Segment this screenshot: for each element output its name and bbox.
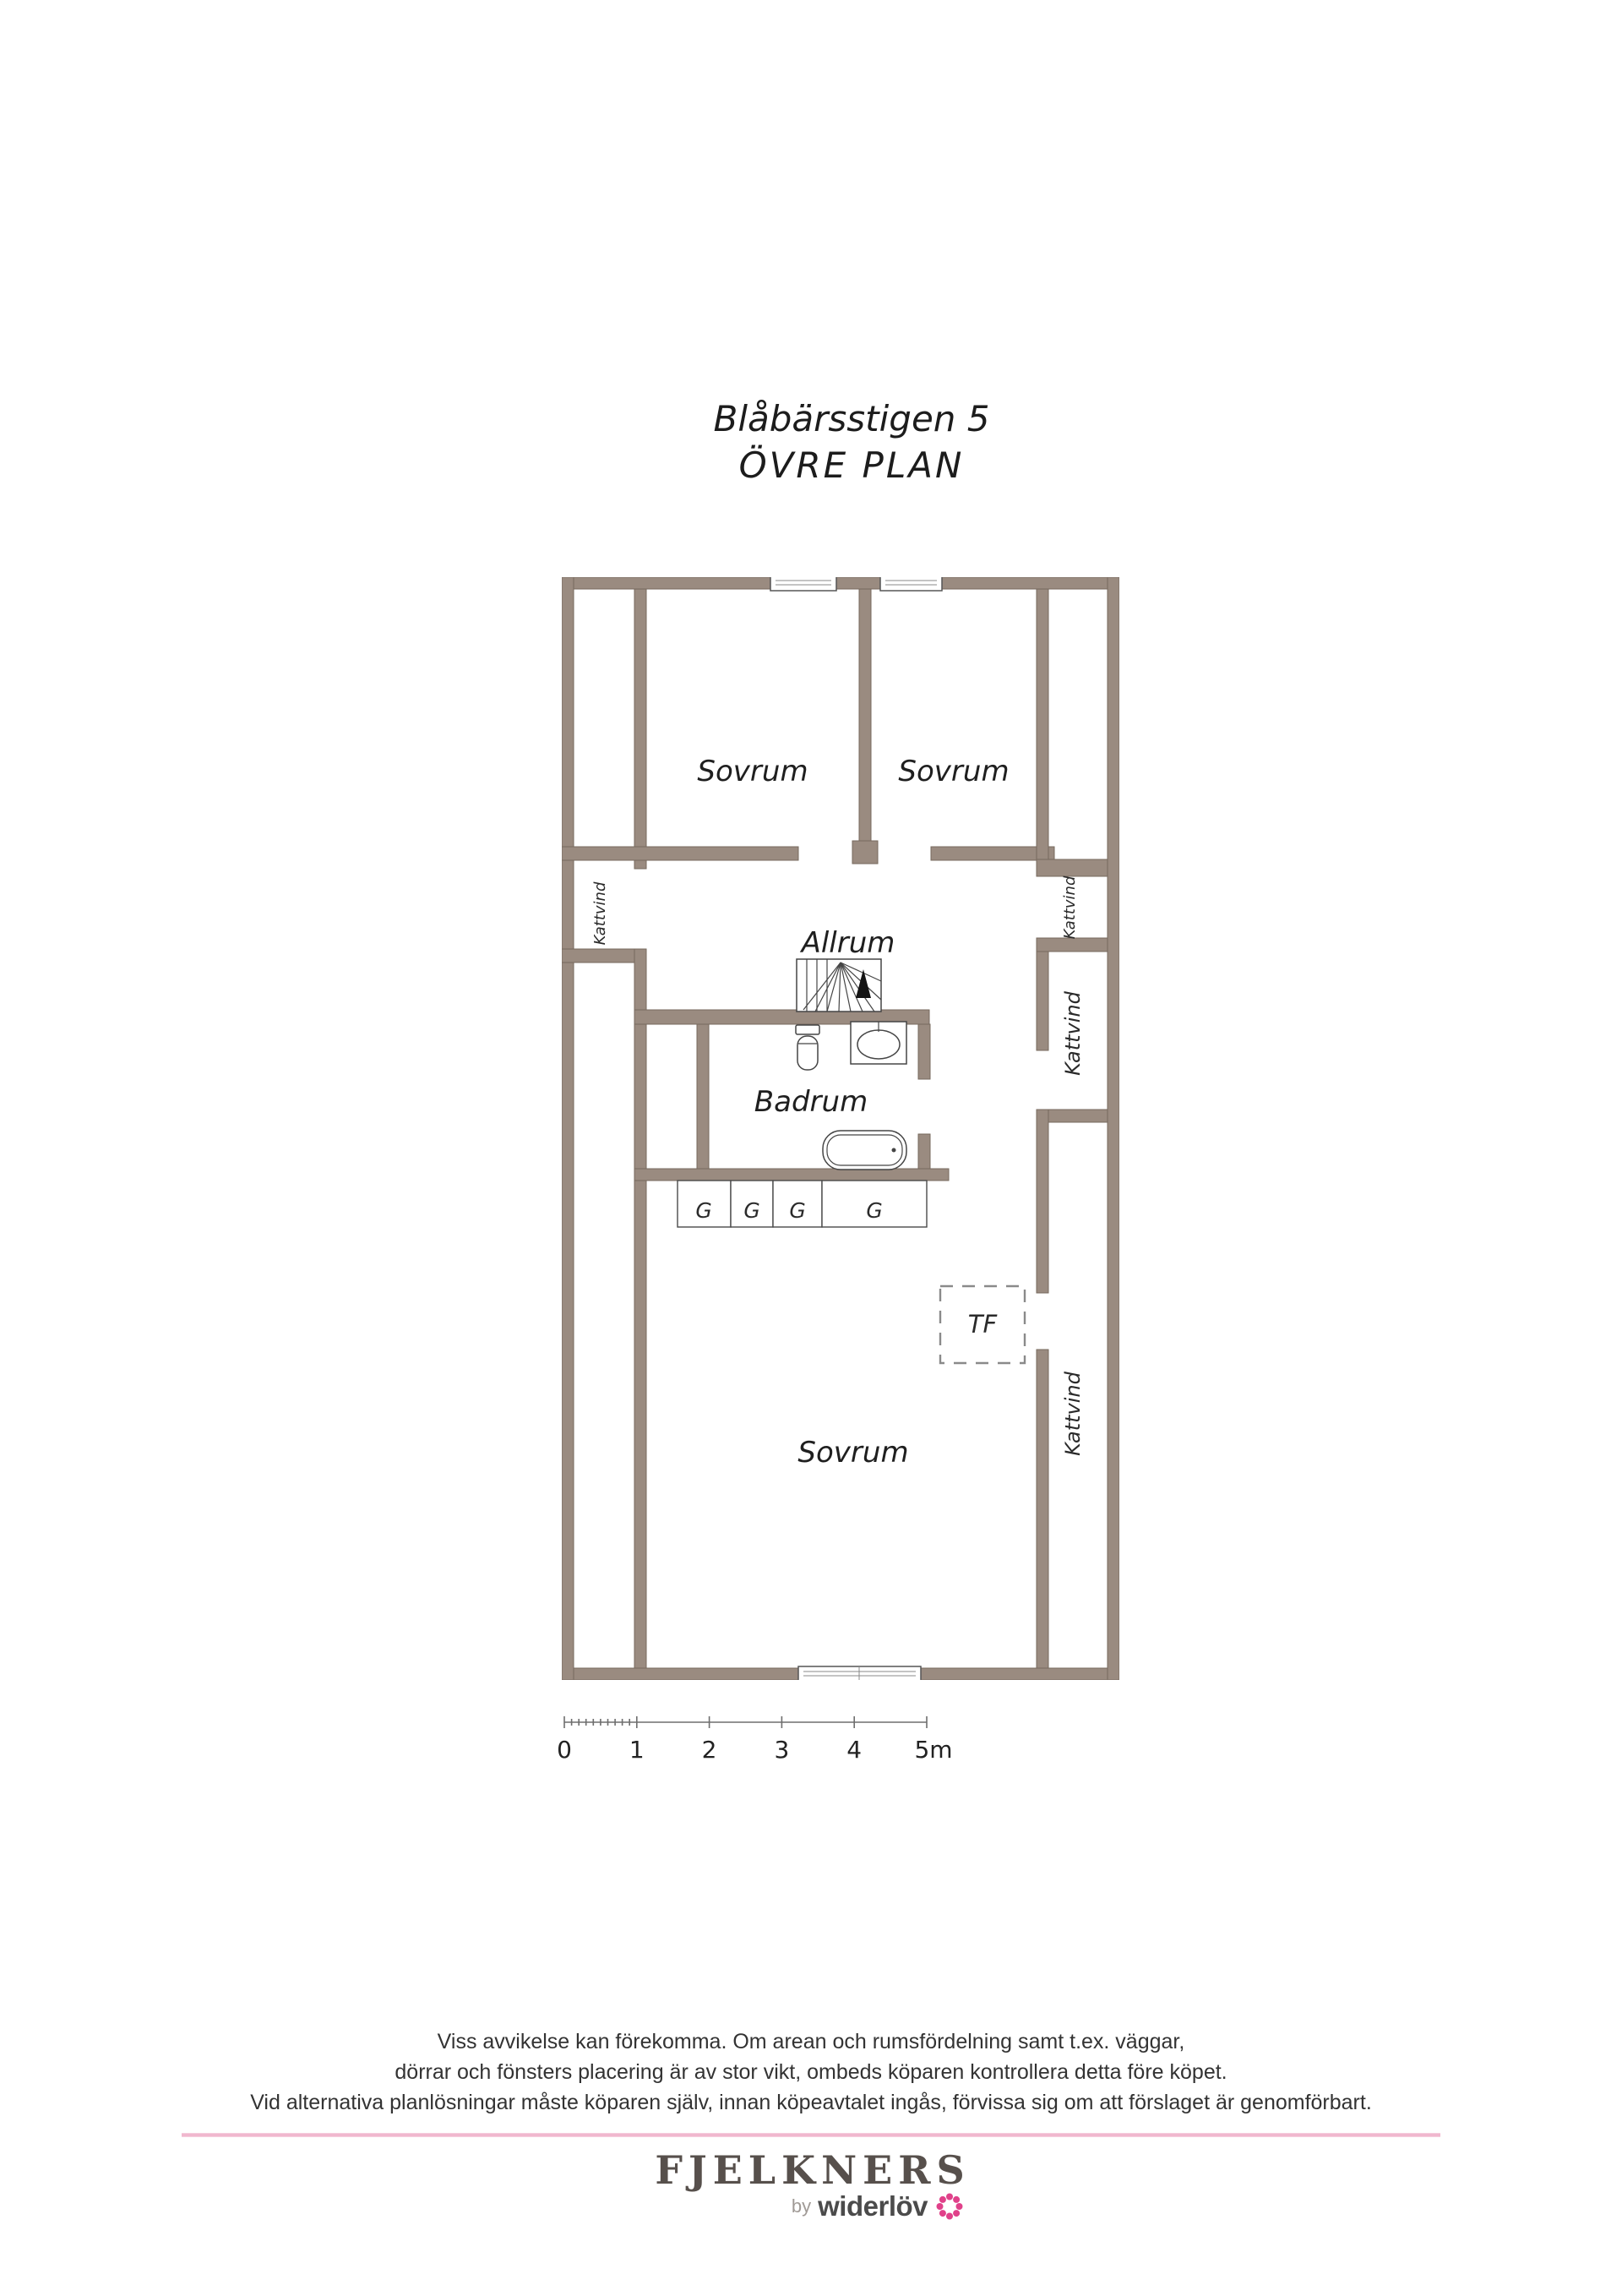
stairs-icon <box>797 959 881 1012</box>
room-label-sovrum-top-left: Sovrum <box>697 755 808 788</box>
floor-plan-drawing: G G G G TF Sovrum Sovrum Allrum Badrum S… <box>562 577 1119 1680</box>
room-label-allrum: Allrum <box>800 926 895 960</box>
scale-tick-label: 5m <box>914 1736 952 1764</box>
scale-bar-drawing: 0 1 2 3 4 5m <box>549 1705 955 1781</box>
window-bottom <box>798 1666 921 1680</box>
wardrobes: G G G G <box>678 1181 927 1227</box>
tf-box: TF <box>940 1286 1025 1363</box>
sub-brand: by widerlöv <box>792 2190 965 2222</box>
footer-divider <box>182 2133 1440 2137</box>
page: Blåbärsstigen 5 ÖVRE PLAN <box>0 0 1622 2296</box>
kattvind-label-left: Kattvind <box>591 881 609 945</box>
kattvind-label-right-small: Kattvind <box>1061 875 1079 939</box>
wardrobe-label: G <box>866 1198 882 1223</box>
disclaimer-line: Vid alternativa planlösningar måste köpa… <box>0 2087 1622 2118</box>
address-title: Blåbärsstigen 5 <box>463 397 1240 442</box>
scale-tick-label: 1 <box>629 1736 645 1764</box>
brand-logo: FJELKNERS <box>0 2147 1622 2193</box>
page-title: Blåbärsstigen 5 ÖVRE PLAN <box>463 397 1240 489</box>
scale-bar: 0 1 2 3 4 5m <box>549 1705 955 1785</box>
scale-tick-label: 0 <box>557 1736 572 1764</box>
window-top-right <box>880 577 942 591</box>
scale-tick-label: 2 <box>702 1736 717 1764</box>
kattvind-label-right-mid: Kattvind <box>1061 990 1085 1075</box>
room-label-sovrum-top-right: Sovrum <box>898 755 1009 788</box>
widerlov-flower-icon <box>934 2191 965 2222</box>
scale-tick-label: 4 <box>846 1736 862 1764</box>
kattvind-label-right-bottom: Kattvind <box>1061 1371 1085 1455</box>
sink-icon <box>851 1022 906 1064</box>
toilet-icon <box>796 1025 819 1070</box>
sub-brand-by: by <box>792 2195 811 2217</box>
tf-label: TF <box>968 1310 999 1339</box>
disclaimer-line: dörrar och fönsters placering är av stor… <box>0 2057 1622 2087</box>
scale-tick-label: 3 <box>774 1736 789 1764</box>
bathtub-icon <box>823 1131 906 1170</box>
room-label-badrum: Badrum <box>754 1085 868 1119</box>
disclaimer: Viss avvikelse kan förekomma. Om arean o… <box>0 2026 1622 2118</box>
floor-title: ÖVRE PLAN <box>463 442 1240 490</box>
floor-plan: G G G G TF Sovrum Sovrum Allrum Badrum S… <box>562 577 1119 1680</box>
window-top-left <box>770 577 836 591</box>
wardrobe-label: G <box>743 1198 759 1223</box>
wardrobe-label: G <box>695 1198 711 1223</box>
disclaimer-line: Viss avvikelse kan förekomma. Om arean o… <box>0 2026 1622 2057</box>
walls <box>562 577 1119 1680</box>
sub-brand-name: widerlöv <box>818 2190 928 2222</box>
room-label-sovrum-bottom: Sovrum <box>797 1436 908 1470</box>
wardrobe-label: G <box>789 1198 805 1223</box>
